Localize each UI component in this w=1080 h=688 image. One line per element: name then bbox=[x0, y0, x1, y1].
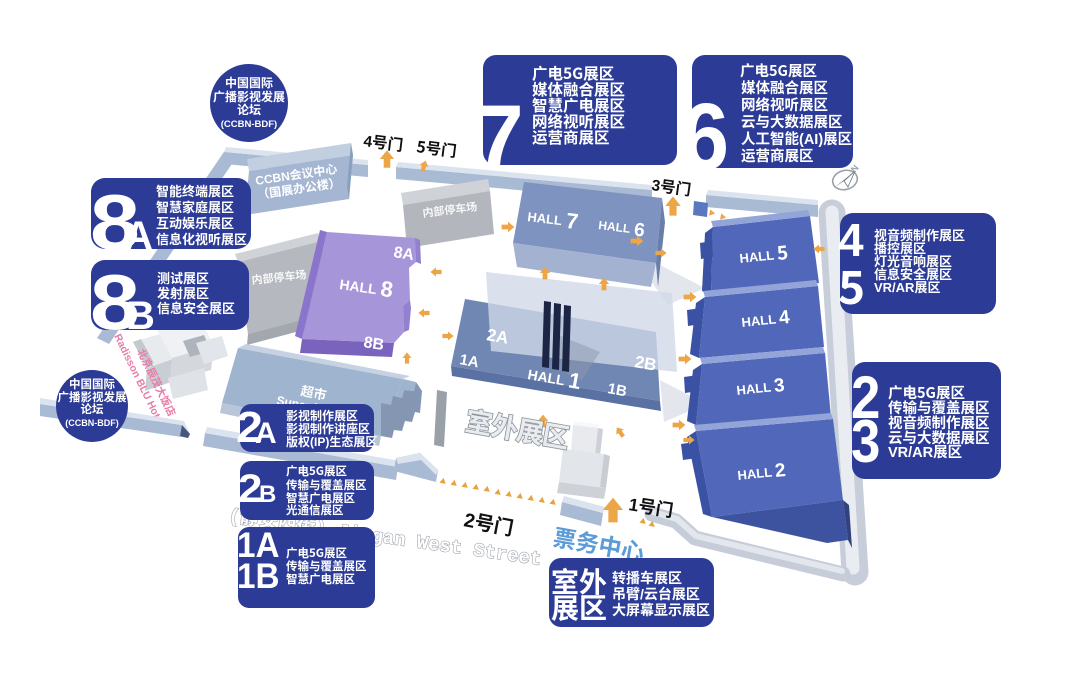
svg-text:8A: 8A bbox=[392, 238, 416, 265]
svg-text:3: 3 bbox=[851, 393, 880, 480]
svg-text:A: A bbox=[255, 408, 277, 452]
svg-text:运营商展区: 运营商展区 bbox=[741, 145, 814, 166]
svg-text:6: 6 bbox=[681, 60, 729, 197]
svg-text:7: 7 bbox=[475, 62, 524, 195]
svg-text:智慧广电展区: 智慧广电展区 bbox=[286, 571, 355, 587]
svg-text:展区: 展区 bbox=[551, 587, 607, 627]
svg-text:论坛: 论坛 bbox=[81, 401, 104, 417]
svg-text:运营商展区: 运营商展区 bbox=[532, 126, 610, 148]
svg-text:2A: 2A bbox=[485, 320, 511, 348]
svg-text:8B: 8B bbox=[362, 328, 386, 355]
svg-text:VR/AR展区: VR/AR展区 bbox=[888, 441, 962, 462]
svg-text:大屏幕显示展区: 大屏幕显示展区 bbox=[612, 600, 710, 620]
svg-text:5: 5 bbox=[838, 252, 865, 318]
svg-text:(CCBN-BDF): (CCBN-BDF) bbox=[65, 416, 119, 429]
svg-text:信息化视听展区: 信息化视听展区 bbox=[156, 229, 247, 248]
svg-text:B: B bbox=[126, 283, 155, 341]
svg-text:(CCBN-BDF): (CCBN-BDF) bbox=[221, 116, 277, 130]
svg-text:VR/AR展区: VR/AR展区 bbox=[874, 277, 940, 296]
svg-text:版权(IP)生态展区: 版权(IP)生态展区 bbox=[286, 433, 377, 450]
svg-text:光通信展区: 光通信展区 bbox=[286, 502, 344, 518]
svg-text:2B: 2B bbox=[633, 347, 659, 375]
svg-text:B: B bbox=[259, 474, 276, 509]
svg-text:1A: 1A bbox=[458, 348, 481, 372]
svg-text:1B: 1B bbox=[606, 377, 629, 401]
svg-text:1B: 1B bbox=[237, 547, 279, 598]
svg-text:信息安全展区: 信息安全展区 bbox=[157, 298, 235, 317]
